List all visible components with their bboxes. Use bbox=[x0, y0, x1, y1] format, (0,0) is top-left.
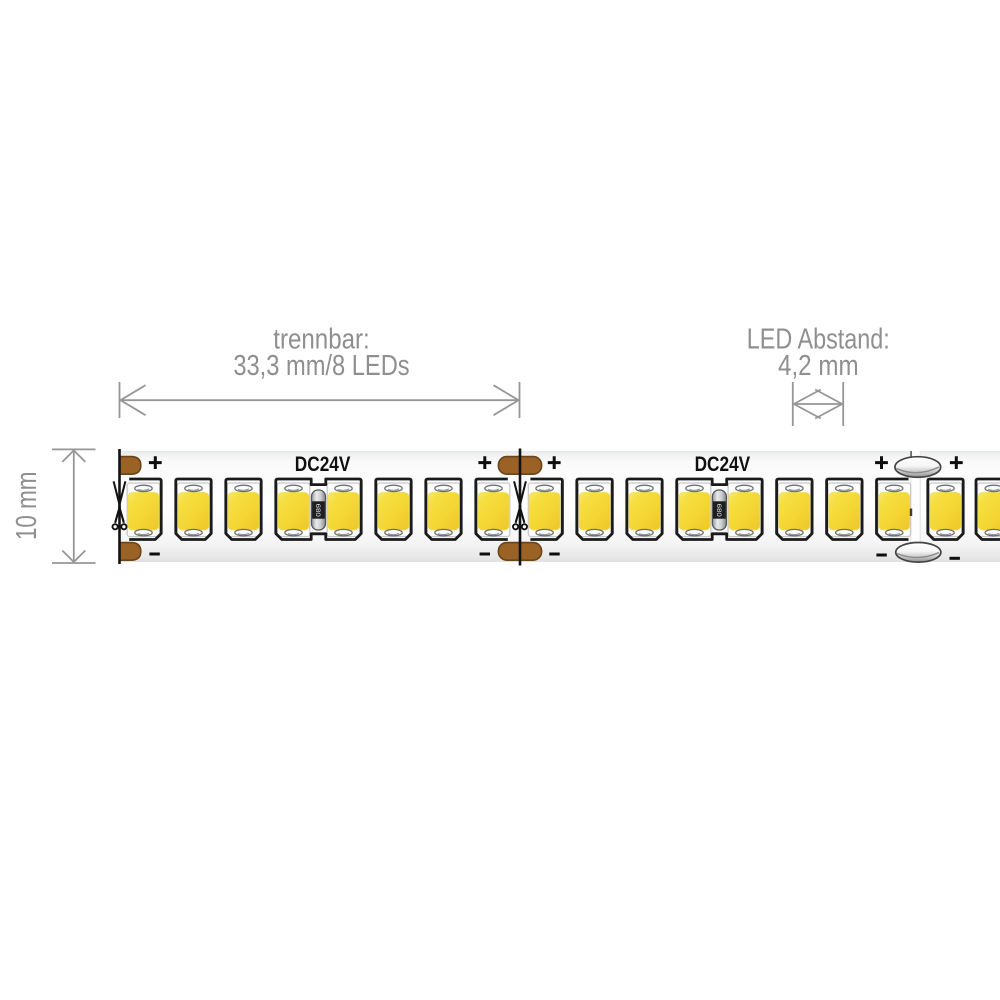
svg-text:4,2 mm: 4,2 mm bbox=[778, 350, 859, 382]
svg-text:089: 089 bbox=[316, 503, 323, 517]
svg-text:089: 089 bbox=[717, 503, 724, 517]
svg-text:DC24V: DC24V bbox=[695, 452, 751, 476]
svg-text:33,3 mm/8 LEDs: 33,3 mm/8 LEDs bbox=[233, 350, 409, 382]
svg-text:10 mm: 10 mm bbox=[11, 472, 43, 541]
svg-text:DC24V: DC24V bbox=[295, 452, 351, 476]
